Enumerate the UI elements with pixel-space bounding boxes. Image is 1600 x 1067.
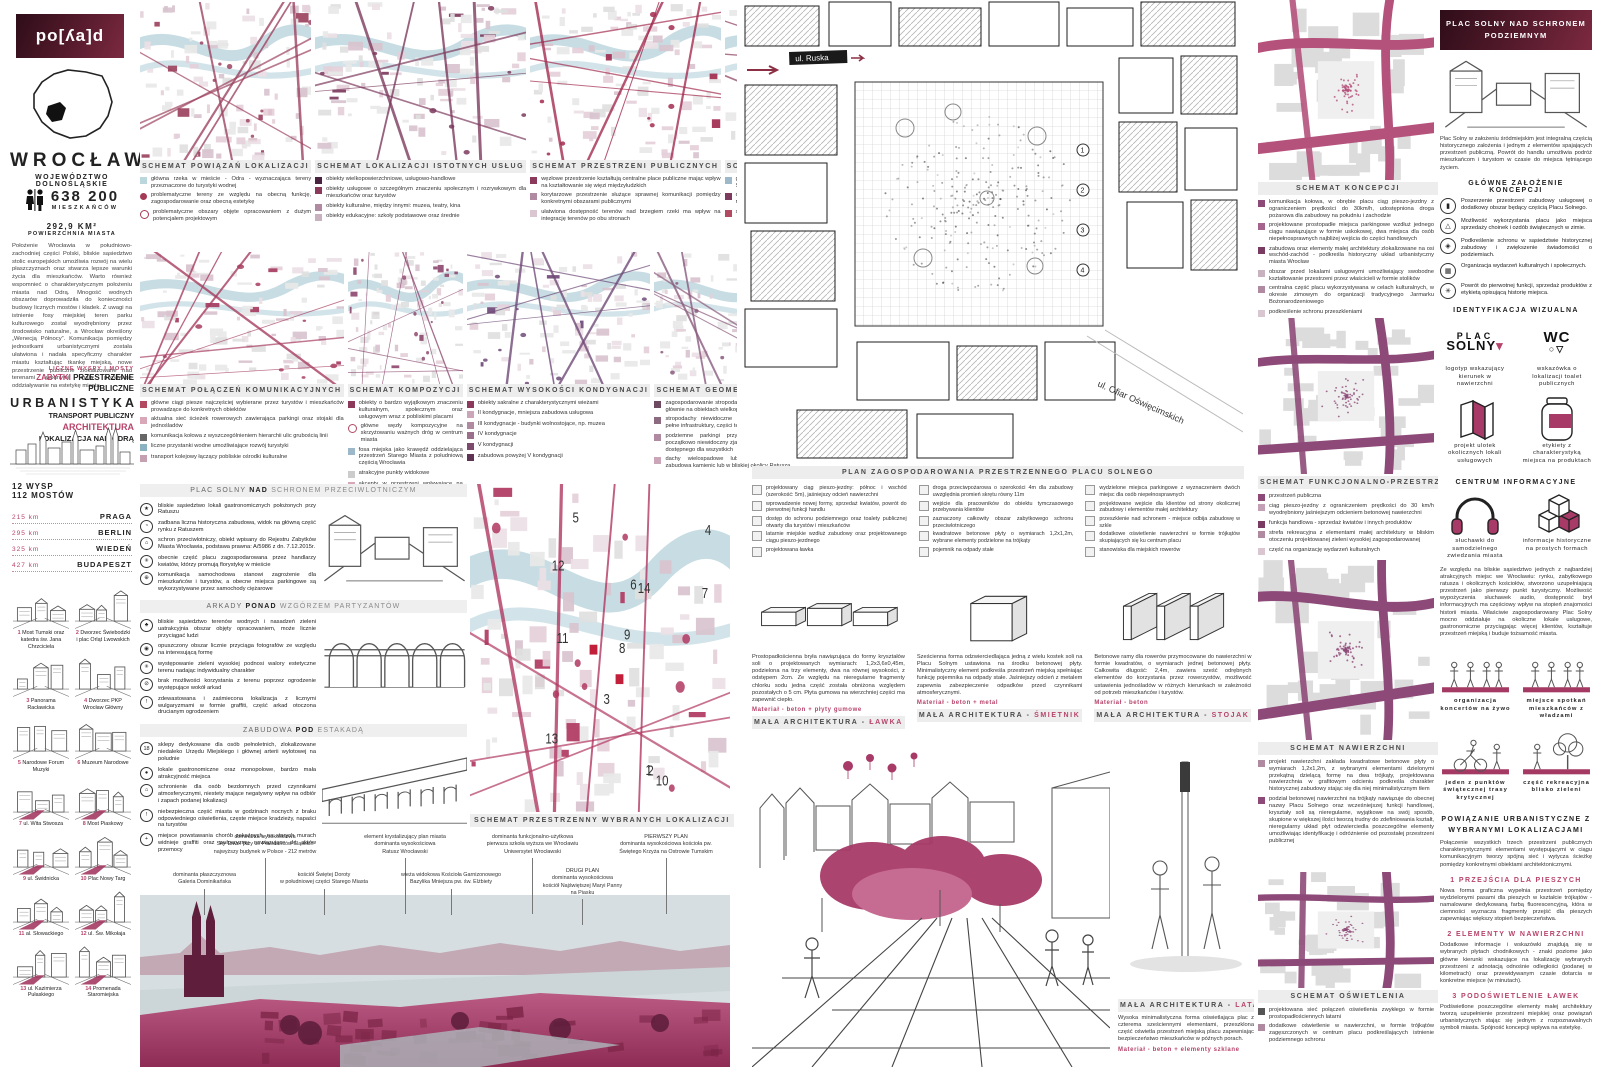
legend-swatch-icon xyxy=(752,531,762,541)
icon-glyph: ✳ xyxy=(144,558,149,565)
landmark-sketch xyxy=(75,888,131,930)
legend-text: projekt nawierzchni zakłada kwadratowe b… xyxy=(1269,759,1434,794)
landmark-sketch xyxy=(75,717,131,759)
paving-elements-title: 2 ELEMENTY W NAWIERZCHNI xyxy=(1440,931,1592,938)
icon-glyph: ! xyxy=(146,812,148,819)
icon-glyph: ▦ xyxy=(1445,267,1452,275)
legend-swatch-icon xyxy=(654,457,661,464)
wc-logotype: WC ○▽ xyxy=(1522,318,1592,366)
location-sketch xyxy=(322,739,467,835)
legend-text: komunikacja kołowa z wyszczególnieniem h… xyxy=(151,433,328,441)
urban-links-title: POWIĄZANIE URBANISTYCZNE Z WYBRANYMI LOK… xyxy=(1440,815,1592,836)
section-bullet-text: zdewastowana i zaśmiecona lokalizacja z … xyxy=(158,696,316,717)
legend-text: II kondygnacje, mniejsza zabudowa usługo… xyxy=(478,410,593,418)
schemat-title: SCHEMAT PRZESTRZENI PUBLICZNYCH xyxy=(530,160,720,173)
landmark-caption: 13 ul. Kazimierza Pułaskiego xyxy=(13,986,69,1000)
section-title-post: SCHRONEM PRZECIWLOTNICZYM xyxy=(268,487,417,494)
legend-text: atrakcyjne punkty widokowe xyxy=(359,470,430,478)
legend-text: kwadratowe betonowe płyty o wymiarach 1,… xyxy=(933,531,1074,544)
camera-icon: ◉ xyxy=(140,643,153,656)
legend-swatch-icon xyxy=(467,422,474,429)
legend-text: transport kolejowy łączący pobliskie ośr… xyxy=(151,454,287,462)
furniture-description: Sześcienna forma odzwierciedlająca jedną… xyxy=(917,654,1082,697)
adult-only-icon: 18 xyxy=(140,742,153,755)
material-label: Materiał - beton + elementy szklane xyxy=(1118,1047,1254,1053)
keyword: TRANSPORT PUBLICZNY xyxy=(49,413,134,420)
legend-swatch-icon xyxy=(654,434,661,441)
legend-swatch-icon xyxy=(140,401,147,408)
landmark-sketch xyxy=(13,587,69,629)
section-header: PLAC SOLNY NAD SCHRONEM PRZECIWLOTNICZYM xyxy=(140,484,467,497)
clock-icon: ◔ xyxy=(140,520,153,533)
schemat-title: SCHEMAT LOKALIZACJI ISTOTNYCH USŁUG xyxy=(315,160,526,173)
callout-line xyxy=(451,889,452,915)
legend-text: wprowadzenie nowej formy, sprzedaż kwiat… xyxy=(766,501,907,514)
direction-arrow xyxy=(747,66,777,74)
svg-text:14: 14 xyxy=(638,580,651,597)
icon-glyph: ⊕ xyxy=(144,575,149,582)
section-title-post: ESTAKADĄ xyxy=(314,727,364,734)
location-sketch xyxy=(322,615,467,711)
legend-swatch-icon xyxy=(348,471,355,478)
legend-swatch-icon xyxy=(530,210,537,217)
caption: etykiety z charakterystyką miejsca na pr… xyxy=(1522,443,1592,466)
schemat-legend: główna rzeka w mieście - Odra - wyznacza… xyxy=(140,173,311,225)
schemat-legend: węzłowe przestrzenie kształtują centraln… xyxy=(530,173,720,225)
functional-map xyxy=(1258,318,1434,474)
schemat-legend: obiekty sakralne z charakterystycznymi w… xyxy=(467,397,651,463)
square-view-sketch xyxy=(1440,54,1592,132)
legend-swatch-icon xyxy=(1258,310,1265,317)
furniture-description: Prostopadłościenna bryła nawiązująca do … xyxy=(752,654,905,704)
furniture-title-prefix: MAŁA ARCHITEKTURA - xyxy=(919,712,1034,719)
leaflet-cell: projekt ulotek okolicznych lokali usługo… xyxy=(1440,395,1510,466)
section-title-bold: NAD xyxy=(249,487,268,494)
street-furniture-row: Prostopadłościenna bryła nawiązująca do … xyxy=(752,580,1244,729)
landmark-sketch xyxy=(75,833,131,875)
legend-swatch-icon xyxy=(1258,1008,1265,1015)
svg-text:7: 7 xyxy=(702,584,708,601)
section-bullet-text: występowanie zieleni wysokiej podnosi wa… xyxy=(158,661,316,675)
street-label-ruska: ul. Ruska xyxy=(795,53,829,63)
legend-swatch-icon xyxy=(752,516,762,526)
svg-text:10: 10 xyxy=(656,772,669,789)
legend-text: węzłowe przestrzenie kształtują centraln… xyxy=(541,176,720,190)
legend-text: projektowany ciąg pieszo-jezdny: północ … xyxy=(766,485,907,498)
legend-text: przeszklenie nad schronem - miejsce odbi… xyxy=(1099,516,1240,529)
main-assumptions-list: ▮ Poszerzenie przestrzeni zabudowy usług… xyxy=(1440,198,1592,299)
furniture-description: Betonowe ramy dla rowerów przymocowane d… xyxy=(1094,654,1251,697)
legend-text: dodatkowe oświetlenie w nawierzchni, w f… xyxy=(1269,1023,1434,1044)
activity-caption: miejsce spotkań mieszkańców z władzami xyxy=(1521,698,1592,721)
section-bullet-text: niebezpieczna część miasta w godzinach n… xyxy=(158,809,316,830)
landmark-label: Narodowe Forum Muzyki xyxy=(22,760,64,773)
icon-glyph: ▮ xyxy=(1446,202,1450,210)
landmark-number: 14 xyxy=(85,986,91,992)
landmark-caption: 6 Muzeum Narodowe xyxy=(75,760,131,767)
warning-icon: ! xyxy=(140,696,153,709)
icon-glyph: ◈ xyxy=(1445,242,1450,250)
distance-km: 215 km xyxy=(12,514,39,521)
distance-city: BUDAPESZT xyxy=(77,560,132,569)
legend-swatch-icon xyxy=(1258,531,1265,538)
legend-swatch-icon xyxy=(348,401,355,408)
landmark-caption: 3 Panorama Racławicka xyxy=(13,698,69,712)
landmark-number: 10 xyxy=(81,876,87,882)
no-access-icon: ⊘ xyxy=(140,678,153,691)
islands-stat: 12 WYSP xyxy=(12,482,132,491)
furniture-title-prefix: MAŁA ARCHITEKTURA - xyxy=(754,719,869,726)
master-plan-drawing: 1 2 3 4 ul. Ruska ul. Ofiar Oświęcimskic… xyxy=(737,0,1243,462)
keyword: PRZESTRZENIE PUBLICZNE xyxy=(73,373,134,393)
landmark-number: 7 xyxy=(19,821,22,827)
schemat-title: SCHEMAT KONCEPCJI xyxy=(1258,182,1438,195)
material-label: Materiał - beton + metal xyxy=(917,700,1082,706)
presentation-board: po[ʎa]d WROCŁAW WOJEWÓDZTWO DOLNOŚLĄSKIE… xyxy=(0,0,1600,1067)
landmark-number: 6 xyxy=(77,760,80,766)
section-bullet-text: schronienie dla osób bezdomnych przed cz… xyxy=(158,784,316,805)
legend-text: ułatwiona dostępność terenów nad brzegie… xyxy=(541,209,720,223)
legend-text: fosa miejska jako krawędź oddzielająca p… xyxy=(359,447,463,468)
icon-glyph: ♣ xyxy=(145,622,149,629)
legend-text: obiekty wielkopowierzchniowe, usługowo-h… xyxy=(326,176,455,184)
legend-swatch-icon xyxy=(467,454,474,461)
paving-elements-text: Dodatkowe informacje i wskazówki znajduj… xyxy=(1440,942,1592,985)
activity-caption: organizacja koncertów na żywo xyxy=(1440,698,1511,713)
legend-swatch-icon xyxy=(140,444,147,451)
icon-glyph: 18 xyxy=(143,746,149,753)
street-label-oswiecimskich: ul. Ofiar Oświęcimskich xyxy=(1096,379,1185,426)
section-title-post: WZGÓRZEM PARTYZANTÓW xyxy=(277,603,401,610)
section-title-pre: ARKADY xyxy=(206,603,245,610)
landmark-sketch xyxy=(75,778,131,820)
legend-text: IV kondygnacje xyxy=(478,431,517,439)
lantern-panel: MAŁA ARCHITEKTURA - LATARNIA Wysoka mini… xyxy=(1118,748,1254,1067)
section-bullet-text: obecnie część placu zagospodarowana prze… xyxy=(158,555,316,569)
islands-bridges-stats: 12 WYSP 112 MOSTÓW xyxy=(12,482,132,500)
svg-text:12: 12 xyxy=(552,557,565,574)
info-center-title: CENTRUM INFORMACYJNE xyxy=(1440,479,1592,486)
legend-swatch-icon xyxy=(315,214,322,221)
assumption-text: Organizacja wydarzeń kulturalnych i społ… xyxy=(1461,263,1592,270)
landmark-label: al. Słowackiego xyxy=(26,931,63,937)
landmark-number: 4 xyxy=(84,698,87,704)
svg-text:9: 9 xyxy=(624,626,630,643)
legend-swatch-icon xyxy=(1258,548,1265,555)
legend-swatch-icon xyxy=(140,434,147,441)
schemat-map xyxy=(140,2,311,160)
tall-greenery-icon: ✳ xyxy=(140,661,153,674)
logo-line: WC xyxy=(1544,331,1571,345)
landmark-sketch xyxy=(13,778,69,820)
legend-swatch-icon xyxy=(752,547,762,557)
legend-text: problematyczne obszary objęte opracowani… xyxy=(153,209,311,223)
callout-line xyxy=(582,899,583,925)
left-info-column: po[ʎa]d WROCŁAW WOJEWÓDZTWO DOLNOŚLĄSKIE… xyxy=(10,0,134,1067)
assumption-text: Powrót do pierwotnej funkcji, sprzedaż p… xyxy=(1461,283,1592,297)
plan-legend-col2: droga przeciwpożarowa o szerokości 4m dl… xyxy=(919,483,1074,559)
schemat-legend: komunikacja kołowa, w obrębie placu ciąg… xyxy=(1258,196,1434,320)
legend-text: wejście dla pracowników do obiektu tymcz… xyxy=(933,501,1074,514)
distance-city: PRAGA xyxy=(100,512,132,521)
legend-text: część na organizację wydarzeń kulturalny… xyxy=(1269,547,1380,555)
legend-swatch-icon xyxy=(919,516,929,526)
activity-caption: jeden z punktów świątecznej trasy krytyc… xyxy=(1440,780,1511,803)
legend-text: zaznaczony całkowity obszar zabytkowego … xyxy=(933,516,1074,529)
location-sketch xyxy=(322,499,467,595)
landmark-number: 9 xyxy=(23,876,26,882)
icon-glyph: ✳ xyxy=(144,664,149,671)
landmark-number: 1 xyxy=(18,630,21,636)
legend-swatch-icon xyxy=(140,177,147,184)
legend-text: strefa rekreacyjna z elementami małej ar… xyxy=(1269,530,1434,544)
section-bullet-text: lokale gastronomiczne oraz monopolowe, b… xyxy=(158,767,316,781)
city-panorama: dominanta wysokościowa Sky Tower przy ul… xyxy=(140,830,730,1067)
landmark-sketch xyxy=(13,655,69,697)
legend-text: funkcja handlowa - sprzedaż kwiatów i in… xyxy=(1269,520,1412,528)
people-icon xyxy=(25,189,45,211)
icon-glyph: △ xyxy=(1445,222,1450,230)
landmark-caption: 12 ul. Św. Mikołaja xyxy=(75,931,131,938)
landmark-number: 5 xyxy=(18,760,21,766)
bench-lighting-title: 3 PODOŚWIETLENIE ŁAWEK xyxy=(1440,993,1592,1000)
legend-swatch-icon xyxy=(1258,797,1265,804)
legend-text: pojemnik na odpady stałe xyxy=(933,547,994,557)
assumption-text: Możliwość wykorzystania placu jako miejs… xyxy=(1461,218,1592,232)
legend-text: dostęp do schronu podziemnego oraz toale… xyxy=(766,516,907,529)
legend-swatch-icon xyxy=(467,411,474,418)
svg-text:11: 11 xyxy=(557,629,569,646)
furniture-object-sketch xyxy=(752,580,905,654)
ponad-logo: po[ʎa]d xyxy=(16,14,124,58)
material-label: Materiał - beton + płyty gumowe xyxy=(752,707,905,713)
legend-text: obiekty o bardzo wyjątkowym znaczeniu ku… xyxy=(359,400,463,421)
landmark-caption: 10 Plac Nowy Targ xyxy=(75,876,131,883)
distance-city: BERLIN xyxy=(98,528,132,537)
callout-line xyxy=(324,889,325,915)
panorama-photo xyxy=(140,895,730,1067)
legend-swatch-icon xyxy=(725,177,732,184)
legend-text: projektowane prostopadłe miejsca parking… xyxy=(1269,222,1434,243)
flowers-trade-icon: ✳ xyxy=(1440,283,1456,299)
wroclaw-skyline-sketch xyxy=(10,420,134,478)
concept-map xyxy=(1258,0,1434,180)
schemat-map xyxy=(140,252,344,384)
master-plan-legend: projektowany ciąg pieszo-jezdny: północ … xyxy=(752,483,1240,559)
section-bullets: ★ bliskie sąsiedztwo lokali gastronomicz… xyxy=(140,499,316,596)
schemat-legend: obiekty wielkopowierzchniowe, usługowo-h… xyxy=(315,173,526,224)
landmark-label: Panorama Racławicka xyxy=(27,698,55,711)
panorama-callout: dominanta płaszczyznowa Galeria Dominika… xyxy=(152,872,257,915)
icon-glyph: ⌂ xyxy=(145,787,148,794)
legend-text: stanowiska dla miejskich rowerów xyxy=(1099,547,1180,557)
svg-text:2: 2 xyxy=(647,762,653,779)
plan-legend-col1: projektowany ciąg pieszo-jezdny: północ … xyxy=(752,483,907,559)
legend-text: dodatkowe oświetlenie nawierzchni w form… xyxy=(1099,531,1240,544)
legend-text: podkreślenie schronu przeszkleniami xyxy=(1269,309,1362,317)
schemat-title: SCHEMAT OŚWIETLENIA xyxy=(1258,990,1438,1003)
shelter-icon: ⌂ xyxy=(140,784,153,797)
legend-swatch-icon xyxy=(1085,531,1095,541)
main-assumptions-title: GŁÓWNE ZAŁOŻENIE KONCEPCJI xyxy=(1440,180,1592,194)
schemat-legend: główne ciągi piesze najczęściej wybieran… xyxy=(140,397,344,464)
legend-swatch-icon xyxy=(467,401,474,408)
jar-cell: etykiety z charakterystyką miejsca na pr… xyxy=(1522,395,1592,466)
landmark-sketch xyxy=(75,587,131,629)
spatial-scheme-map: 1234567891011121314 xyxy=(470,484,730,812)
legend-text: korytarzowe przestrzenie służące sprawne… xyxy=(541,192,720,206)
landmark-caption: 5 Narodowe Forum Muzyki xyxy=(13,760,69,774)
landmark-list: 1 Most Tumski oraz katedra św. Jana Chrz… xyxy=(10,585,134,1002)
cubes-cell: informacje historyczne na prostych forma… xyxy=(1522,490,1592,561)
caption: informacje historyczne na prostych forma… xyxy=(1522,538,1592,553)
landmark-caption: 14 Promenada Staromiejska xyxy=(75,986,131,1000)
landmark-label: Dworzec PKP Wrocław Główny xyxy=(83,698,123,711)
legend-swatch-icon xyxy=(467,443,474,450)
shelter-awareness-icon: ◈ xyxy=(1440,238,1456,254)
landmark-label: Dworzec Świebodzki i plac Orląt Lwowskic… xyxy=(76,630,130,643)
icon-glyph: ✳ xyxy=(1445,287,1451,295)
section-bullet-text: brak możliwości korzystania z terenu pop… xyxy=(158,678,316,692)
legend-swatch-icon xyxy=(919,485,929,495)
gastronomy-icon: ● xyxy=(140,767,153,780)
legend-swatch-icon xyxy=(348,424,357,433)
section-header: ZABUDOWA POD ESTAKADĄ xyxy=(140,724,467,737)
legend-swatch-icon xyxy=(530,193,537,200)
schemat-legend: przestrzeń publicznaciąg pieszo-jezdny z… xyxy=(1258,490,1434,557)
furniture-title-name: STOJAK xyxy=(1212,712,1250,719)
calendar-events-icon: ▦ xyxy=(1440,263,1456,279)
plan-marker: 3 xyxy=(1081,228,1085,235)
crossings-title: 1 PRZEJŚCIA DLA PIESZYCH xyxy=(1440,877,1592,884)
landmark-caption: 1 Most Tumski oraz katedra św. Jana Chrz… xyxy=(13,630,69,650)
icon-glyph: ● xyxy=(145,770,148,777)
section-title-bold: PONAD xyxy=(246,603,277,610)
logotype-cell: PLAC SOLNY▾ logotyp wskazujący kierunek … xyxy=(1440,318,1510,389)
furniture-title: MAŁA ARCHITEKTURA - ŚMIETNIK xyxy=(917,709,1082,722)
furniture-description: Wysoka minimalistyczna forma oświetlając… xyxy=(1118,1015,1254,1044)
legend-swatch-icon xyxy=(315,204,322,211)
icon-glyph: ◉ xyxy=(144,646,149,653)
legend-swatch-icon xyxy=(1258,494,1265,501)
section-bullet-text: sklepy dedykowane dla osób pełnoletnich,… xyxy=(158,742,316,763)
caption: logotyp wskazujący kierunek w nawierzchn… xyxy=(1440,366,1510,389)
furniture-title-name: LATARNIA xyxy=(1235,1002,1254,1009)
activity-sketch xyxy=(1521,644,1592,696)
legend-swatch-icon xyxy=(140,455,147,462)
logo-line: SOLNY xyxy=(1446,338,1496,353)
landmark-caption: 8 Most Piaskowy xyxy=(75,821,131,828)
landmark-label: ul. Kazimierza Pułaskiego xyxy=(28,986,62,999)
schemat-legend: projektowana sieć połączeń oświetlenia z… xyxy=(1258,1004,1434,1047)
landmark-label: Promenada Staromiejska xyxy=(87,986,120,999)
landmark-sketch xyxy=(13,717,69,759)
wc-cell: WC ○▽ wskazówka o lokalizacji toalet pub… xyxy=(1522,318,1592,389)
landmark-label: ul. Świdnicka xyxy=(28,876,59,882)
furniture-title-name: ŚMIETNIK xyxy=(1034,712,1080,719)
icon-glyph: ⊘ xyxy=(144,681,149,688)
city-area: 292,9 KM² POWIERZCHNIA MIASTA xyxy=(10,222,134,237)
legend-text: centralna część placu wykorzystywana w c… xyxy=(1269,285,1434,306)
landmark-label: Plac Nowy Targ xyxy=(88,876,125,882)
paving-map xyxy=(1258,560,1434,740)
population-row: 638 200 MIESZKAŃCÓW xyxy=(10,188,134,211)
bench-lighting-text: Podświetlone poszczególne elementy małej… xyxy=(1440,1004,1592,1033)
monument-icon: ⌂ xyxy=(140,537,153,550)
legend-swatch-icon xyxy=(467,432,474,439)
region-name: WOJEWÓDZTWO DOLNOŚLĄSKIE xyxy=(10,174,134,188)
danger-icon: ! xyxy=(140,809,153,822)
legend-swatch-icon xyxy=(725,210,732,217)
caption: projekt ulotek okolicznych lokali usługo… xyxy=(1440,443,1510,466)
legend-swatch-icon xyxy=(1258,521,1265,528)
section-bullet-text: bliskie sąsiedztwo lokali gastronomiczny… xyxy=(158,503,316,517)
legend-text: problematyczne tereny ze względu na obec… xyxy=(151,192,311,206)
plan-marker: 4 xyxy=(1081,268,1085,275)
plac-solny-logotype: PLAC SOLNY▾ xyxy=(1440,318,1510,366)
legend-swatch-icon xyxy=(1258,200,1265,207)
callout-line xyxy=(666,858,667,914)
legend-swatch-icon xyxy=(1258,247,1265,254)
section-bullet-text: komunikacja samochodowa stanowi zagrożen… xyxy=(158,572,316,593)
legend-swatch-icon xyxy=(1258,286,1265,293)
legend-swatch-icon xyxy=(1258,223,1265,230)
legend-text: obiekty sakralne z charakterystycznymi w… xyxy=(478,400,599,408)
icon-glyph: ⌂ xyxy=(145,540,148,547)
legend-swatch-icon xyxy=(140,193,147,200)
schemat-legend: obiekty o bardzo wyjątkowym znaczeniu ku… xyxy=(348,397,463,497)
location-sections: PLAC SOLNY NAD SCHRONEM PRZECIWLOTNICZYM… xyxy=(140,484,467,861)
plan-marker: 2 xyxy=(1081,188,1085,195)
bridges-stat: 112 MOSTÓW xyxy=(12,491,132,500)
legend-swatch-icon xyxy=(1258,270,1265,277)
legend-text: obiekty edukacyjne: szkoły podstawowe or… xyxy=(326,213,459,221)
schemat-title: SCHEMAT NAWIERZCHNI xyxy=(1258,742,1438,755)
section-bullet-text: bliskie sąsiedztwo terenów wodnych i nas… xyxy=(158,619,316,640)
landmark-sketch xyxy=(75,943,131,985)
legend-swatch-icon xyxy=(1258,504,1265,511)
legend-text: podział betonowej nawierzchni na trójkąt… xyxy=(1269,796,1434,845)
legend-swatch-icon xyxy=(725,193,732,200)
visual-identity-grid: PLAC SOLNY▾ logotyp wskazujący kierunek … xyxy=(1440,318,1592,471)
legend-swatch-icon xyxy=(1085,501,1095,511)
activity-sketch xyxy=(1440,644,1511,696)
legend-swatch-icon xyxy=(1085,485,1095,495)
legend-text: główne ciągi piesze najczęściej wybieran… xyxy=(151,400,344,414)
section-bullet-text: opuszczony obszar licznie przyciąga foto… xyxy=(158,643,316,657)
master-plan-title: PLAN ZAGOSPODAROWANIA PRZESTRZENNEGO PLA… xyxy=(752,466,1244,479)
icon-glyph: ★ xyxy=(144,506,149,513)
furniture-title-prefix: MAŁA ARCHITEKTURA - xyxy=(1096,712,1211,719)
legend-swatch-icon xyxy=(1258,1024,1265,1031)
legend-text: projektowana sieć połączeń oświetlenia z… xyxy=(1269,1007,1434,1021)
legend-text: zabudowa powyżej V kondygnacji xyxy=(478,453,563,461)
keyword: LICZNE WYSPY I MOSTY xyxy=(10,366,134,373)
legend-swatch-icon xyxy=(654,401,661,408)
legend-text: przestrzeń publiczna xyxy=(1269,493,1321,501)
schemat-title: SCHEMAT WYSOKOŚCI KONDYGNACJI xyxy=(467,384,651,397)
section-bullets: ♣ bliskie sąsiedztwo terenów wodnych i n… xyxy=(140,615,316,719)
keyword: ZABYTKI xyxy=(36,373,71,382)
legend-swatch-icon xyxy=(1085,547,1095,557)
legend-swatch-icon xyxy=(752,485,762,495)
legend-swatch-icon xyxy=(919,531,929,541)
activity-caption: część rekreacyjna blisko zieleni xyxy=(1521,780,1592,795)
panorama-callout: DRUGI PLAN dominanta wysokościowa kośció… xyxy=(525,868,640,925)
landmark-label: ul. Wita Stwosza xyxy=(23,821,63,827)
section-title-pre: ZABUDOWA xyxy=(243,727,296,734)
concept-column: PLAC SOLNY NAD SCHRONEM PODZIEMNYM Plac … xyxy=(1440,0,1592,1033)
